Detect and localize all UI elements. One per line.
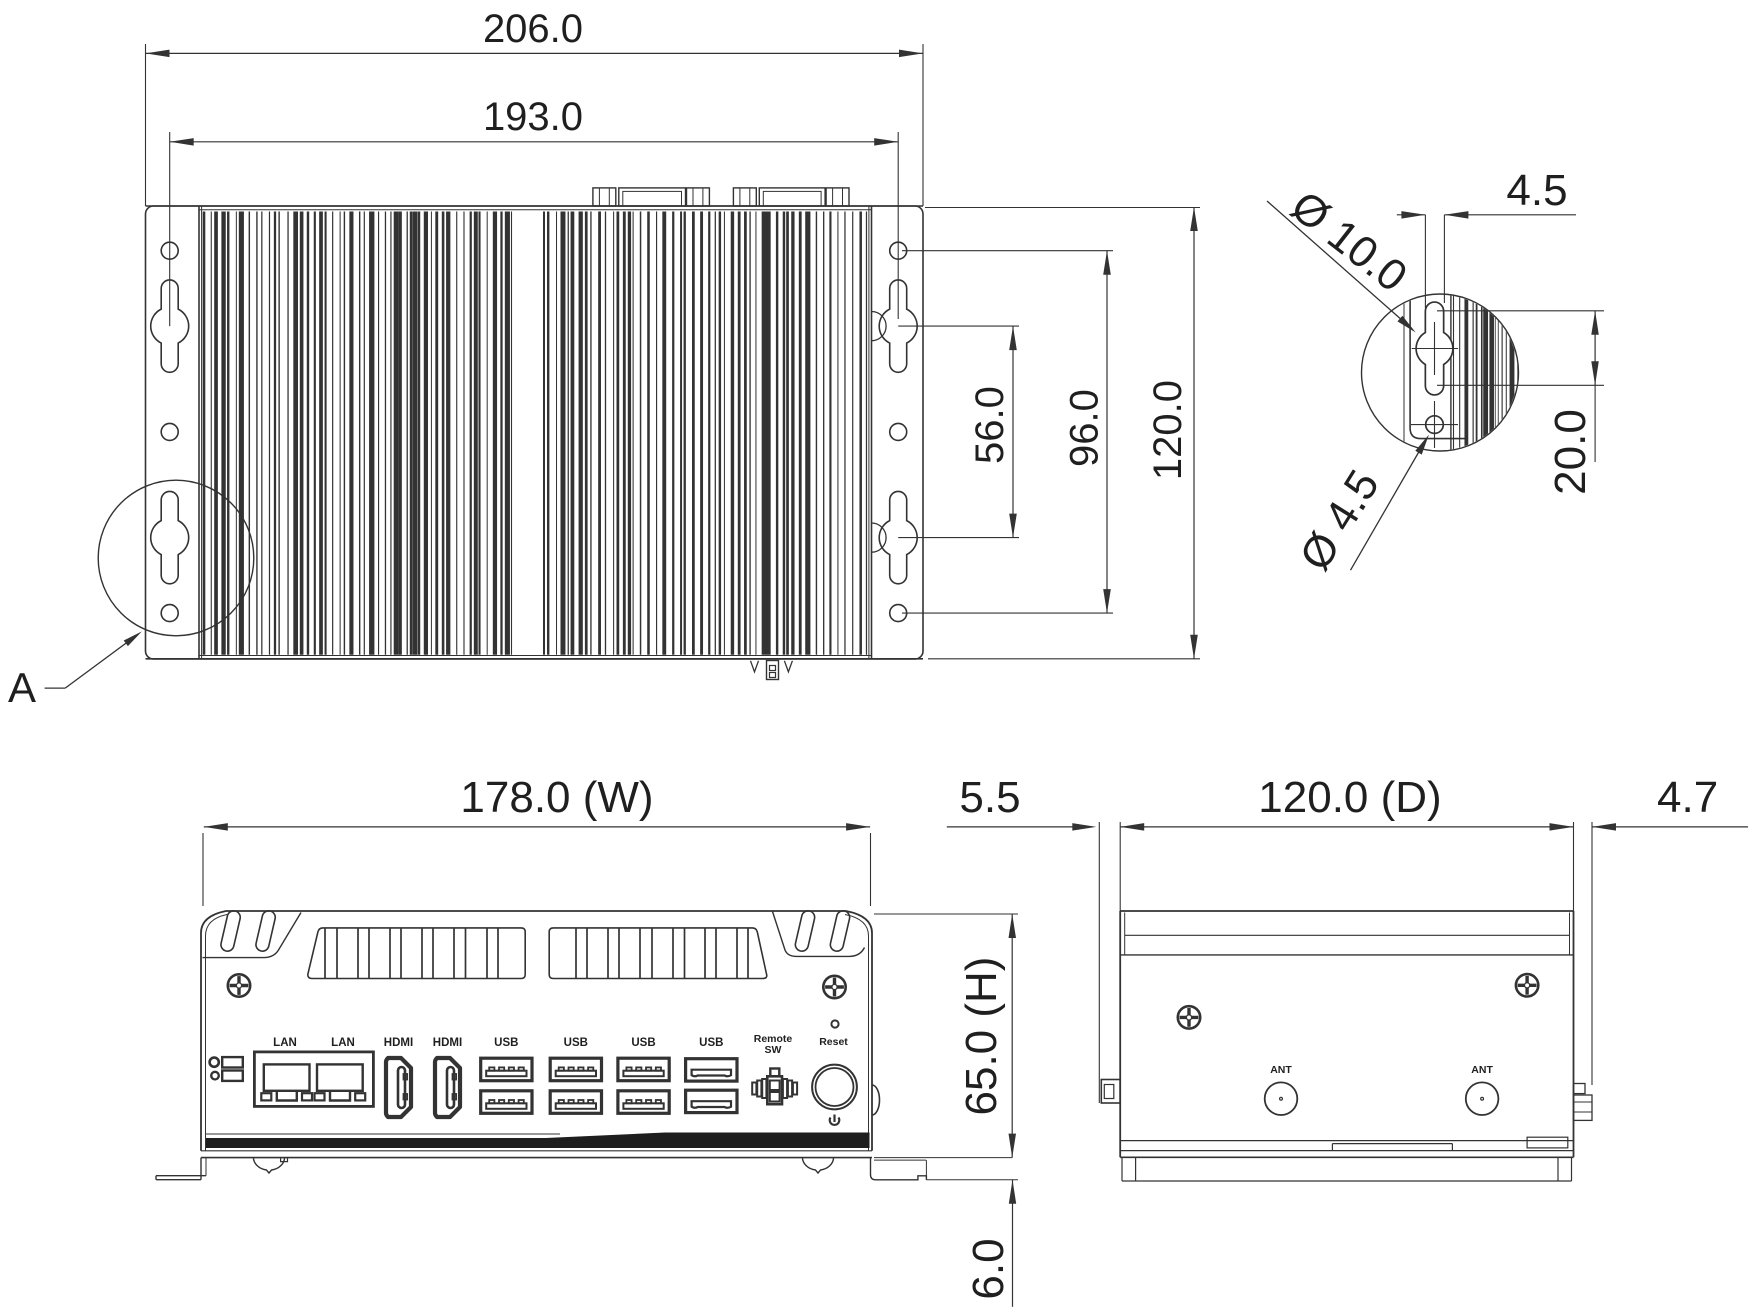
svg-text:56.0: 56.0	[968, 386, 1012, 464]
svg-text:LAN: LAN	[273, 1037, 297, 1049]
svg-text:LAN: LAN	[331, 1037, 355, 1049]
svg-text:Reset: Reset	[819, 1036, 848, 1048]
svg-text:96.0: 96.0	[1063, 389, 1107, 467]
svg-text:120.0: 120.0	[1146, 380, 1190, 480]
svg-text:20.0: 20.0	[1546, 409, 1595, 495]
svg-text:4.7: 4.7	[1657, 773, 1718, 822]
svg-text:USB: USB	[631, 1037, 655, 1049]
svg-text:ANT: ANT	[1471, 1064, 1493, 1076]
svg-text:USB: USB	[564, 1037, 588, 1049]
svg-text:HDMI: HDMI	[433, 1037, 462, 1049]
svg-text:120.0 (D): 120.0 (D)	[1258, 773, 1441, 822]
svg-text:HDMI: HDMI	[384, 1037, 413, 1049]
svg-text:5.5: 5.5	[959, 773, 1020, 822]
svg-text:USB: USB	[699, 1037, 723, 1049]
svg-text:A: A	[8, 664, 36, 711]
svg-text:USB: USB	[494, 1037, 518, 1049]
svg-text:65.0 (H): 65.0 (H)	[957, 957, 1006, 1116]
svg-text:4.5: 4.5	[1506, 166, 1567, 215]
svg-text:193.0: 193.0	[483, 95, 583, 139]
svg-text:6.0: 6.0	[964, 1238, 1013, 1299]
svg-text:206.0: 206.0	[483, 7, 583, 51]
svg-text:178.0 (W): 178.0 (W)	[460, 773, 653, 822]
svg-text:SW: SW	[765, 1044, 782, 1056]
svg-text:ANT: ANT	[1270, 1064, 1292, 1076]
